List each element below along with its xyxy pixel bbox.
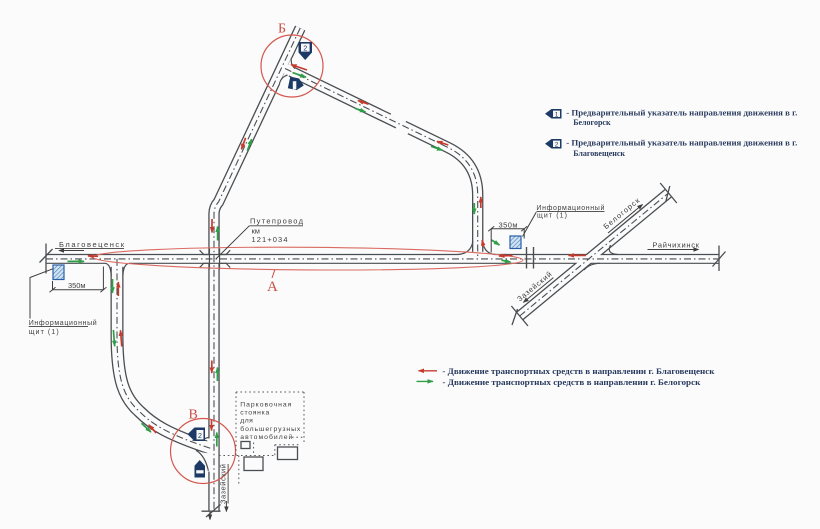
svg-text:Белогорск: Белогорск <box>573 118 611 127</box>
svg-text:А: А <box>267 279 278 295</box>
svg-text:- Предварительный указатель на: - Предварительный указатель направления … <box>566 109 797 118</box>
svg-text:- Движение транспортных средст: - Движение транспортных средств в направ… <box>442 367 714 376</box>
svg-text:- Предварительный указатель на: - Предварительный указатель направления … <box>566 139 797 148</box>
svg-text:350м: 350м <box>499 220 518 229</box>
svg-text:Информационный: Информационный <box>536 204 604 212</box>
svg-text:Зазейский: Зазейский <box>219 464 228 504</box>
svg-text:- Движение транспортных средст: - Движение транспортных средств в направ… <box>442 378 700 387</box>
svg-text:2: 2 <box>198 433 202 440</box>
svg-text:для: для <box>240 418 253 425</box>
svg-text:Благовещенск: Благовещенск <box>573 149 625 158</box>
svg-text:автомобилей: автомобилей <box>240 433 292 441</box>
svg-text:большегрузных: большегрузных <box>240 425 301 433</box>
svg-text:1: 1 <box>555 111 559 118</box>
svg-text:щит (1): щит (1) <box>29 329 59 336</box>
svg-text:2: 2 <box>555 141 559 148</box>
svg-text:Информационный: Информационный <box>29 319 97 327</box>
svg-text:Райчихинск: Райчихинск <box>652 240 699 249</box>
svg-text:2: 2 <box>303 46 307 53</box>
svg-text:Путепровод: Путепровод <box>250 217 304 226</box>
svg-text:щит (1): щит (1) <box>537 212 567 219</box>
svg-text:Б: Б <box>278 22 286 37</box>
svg-text:121+034: 121+034 <box>252 235 288 244</box>
svg-text:350м: 350м <box>68 281 86 290</box>
svg-text:Благовеценск: Благовеценск <box>59 240 125 249</box>
svg-text:стоянка: стоянка <box>240 410 269 417</box>
svg-text:Парковочная: Парковочная <box>240 401 291 408</box>
svg-text:В: В <box>189 408 198 423</box>
